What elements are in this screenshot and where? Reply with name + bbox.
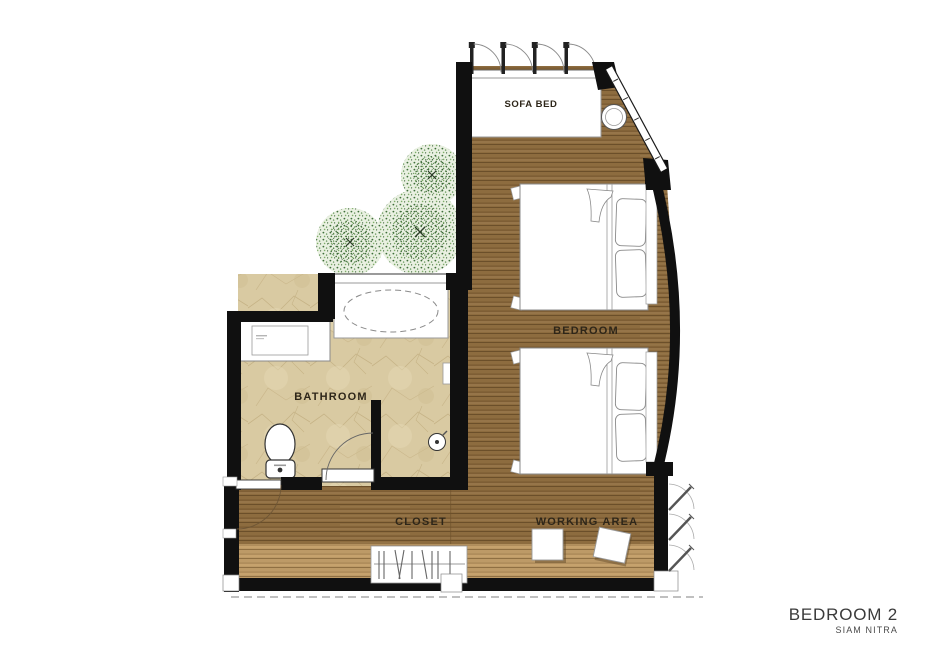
plan-title: BEDROOM 2 xyxy=(789,605,898,624)
column xyxy=(654,571,678,591)
tree xyxy=(316,208,384,276)
wall-bathroom-south xyxy=(281,477,322,490)
louvre-windows xyxy=(669,484,694,571)
louvre-window xyxy=(669,545,694,571)
toilet xyxy=(265,424,295,478)
floorplan-page: SOFA BED BEDROOM BATHROOM CLOSET WORKING… xyxy=(0,0,940,664)
headboard-ledge xyxy=(646,352,657,462)
desk-chair-1 xyxy=(532,529,566,563)
wall-bedroom-west xyxy=(456,62,472,286)
bathroom-window xyxy=(332,274,448,283)
bathtub xyxy=(334,283,448,338)
vanity-sink xyxy=(239,319,330,361)
side-table xyxy=(602,105,627,130)
wall-break xyxy=(223,529,236,538)
louvre-window xyxy=(669,484,694,510)
tree xyxy=(401,144,463,206)
label-bathroom: BATHROOM xyxy=(294,391,368,403)
column xyxy=(223,575,239,591)
label-working-area: WORKING AREA xyxy=(536,516,639,528)
louvre-window xyxy=(669,514,694,540)
label-closet: CLOSET xyxy=(395,516,447,528)
wall-bathroom-east xyxy=(450,273,468,490)
wall-bathroom-west xyxy=(227,312,241,490)
garden-trees xyxy=(316,144,463,276)
wall-break xyxy=(223,477,237,486)
bed-2 xyxy=(511,348,648,474)
column xyxy=(441,574,462,592)
floorplan-svg: SOFA BED BEDROOM BATHROOM CLOSET WORKING… xyxy=(0,0,940,664)
bed-1 xyxy=(511,184,648,310)
label-sofa-bed: SOFA BED xyxy=(504,99,557,110)
label-bedroom: BEDROOM xyxy=(553,325,619,337)
wall-bathroom-south xyxy=(381,477,454,490)
headboard-ledge xyxy=(646,186,657,304)
plan-subtitle: SIAM NITRA xyxy=(835,625,898,635)
wall-east-bottom xyxy=(654,468,668,580)
door-track xyxy=(458,70,604,78)
desk-chair-2 xyxy=(593,527,633,566)
wall-bathroom-nw xyxy=(227,311,333,322)
